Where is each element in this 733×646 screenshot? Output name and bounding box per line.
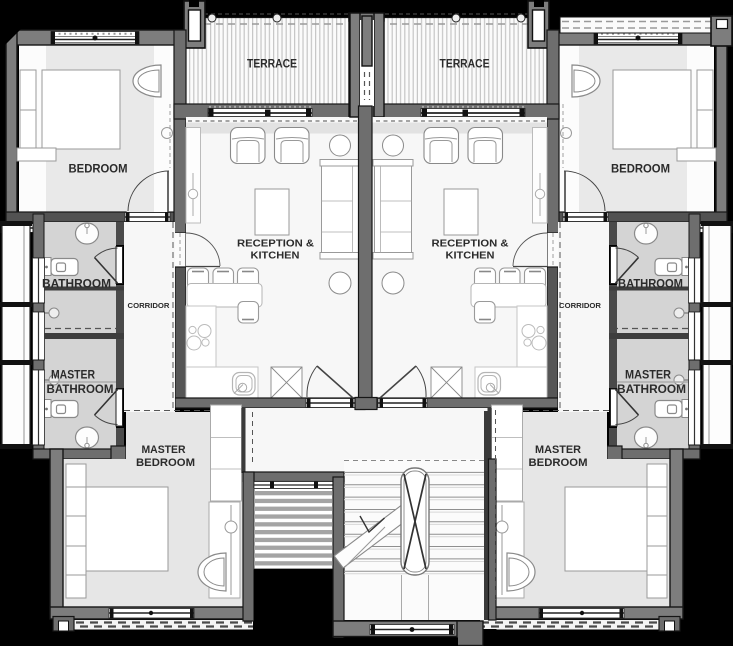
svg-text:MASTER: MASTER (142, 444, 186, 456)
svg-text:BATHROOM: BATHROOM (618, 277, 683, 291)
svg-text:BATHROOM: BATHROOM (47, 384, 114, 396)
svg-text:MASTER: MASTER (535, 444, 581, 456)
svg-text:BEDROOM: BEDROOM (529, 457, 588, 469)
svg-text:CORRIDOR: CORRIDOR (559, 301, 602, 310)
svg-text:BEDROOM: BEDROOM (136, 457, 195, 469)
svg-text:KITCHEN: KITCHEN (251, 250, 300, 262)
svg-text:BATHROOM: BATHROOM (617, 384, 686, 396)
svg-text:MASTER: MASTER (51, 370, 96, 382)
svg-text:BATHROOM: BATHROOM (42, 277, 111, 291)
svg-text:RECEPTION &: RECEPTION & (432, 238, 509, 250)
svg-text:KITCHEN: KITCHEN (446, 250, 495, 262)
svg-text:BEDROOM: BEDROOM (611, 164, 670, 176)
svg-text:MASTER: MASTER (625, 370, 672, 382)
svg-text:BEDROOM: BEDROOM (69, 164, 128, 176)
svg-text:TERRACE: TERRACE (247, 57, 297, 71)
svg-text:TERRACE: TERRACE (440, 57, 490, 71)
svg-text:CORRIDOR: CORRIDOR (128, 301, 171, 310)
svg-text:RECEPTION &: RECEPTION & (237, 238, 314, 250)
